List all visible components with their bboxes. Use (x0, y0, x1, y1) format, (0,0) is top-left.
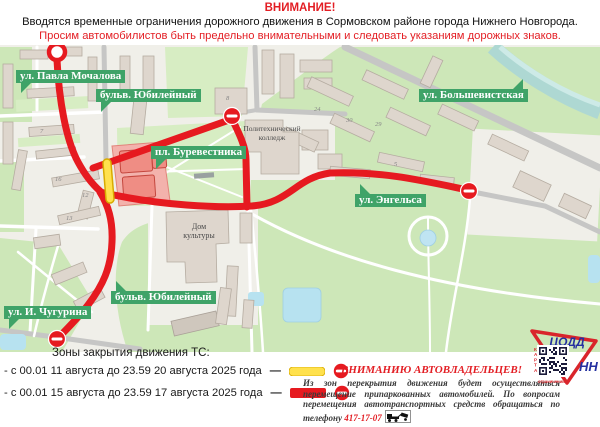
owner-notice: ВНИМАНИЮ АВТОВЛАДЕЛЬЦЕВ! Из зон перекрыт… (303, 364, 560, 423)
college-label-line2: колледж (259, 133, 286, 142)
building-number: 24 (314, 106, 321, 113)
street-label-burevestnika: пл. Буревестника (151, 146, 246, 159)
building-number: 16 (55, 176, 62, 183)
codd-logo: ЦОДД КАРТА НН ограничений (527, 317, 600, 393)
no-entry-sign-engelsa (461, 183, 478, 200)
road-closure-poster: ВНИМАНИЕ! Вводятся временные ограничения… (0, 0, 600, 427)
street-label-bolshevistskaya: ул. Большевистская (419, 89, 528, 102)
legend-dash: — (270, 365, 281, 377)
street-label-engelsa: ул. Энгельса (355, 194, 426, 207)
owner-notice-body: Из зон перекрытия движения будет осущест… (303, 378, 560, 423)
building-number: 29 (375, 121, 382, 128)
logo-qr-bottom-caption: ограничений (538, 379, 565, 384)
legend-title: Зоны закрытия движения ТС: (52, 347, 210, 359)
legend-item-text: - с 00.01 15 августа до 23.59 17 августа… (4, 387, 263, 399)
legend-item-red: - с 00.01 15 августа до 23.59 17 августа… (4, 385, 350, 401)
header-description: Вводятся временные ограничения дорожного… (0, 16, 600, 28)
building-number: 13 (66, 215, 73, 222)
closure-segment-yellow (107, 163, 110, 199)
no-entry-sign-north (224, 108, 241, 125)
owner-notice-title: ВНИМАНИЮ АВТОВЛАДЕЛЬЦЕВ! (303, 364, 560, 376)
street-label-yubileyny-bottom: бульв. Юбилейный (111, 291, 216, 304)
phone-number: 417-17-07 (344, 413, 382, 423)
legend-dash: — (271, 387, 282, 399)
logo-city: НН (579, 359, 598, 374)
street-label-yubileyny-top: бульв. Юбилейный (96, 89, 201, 102)
tow-truck-icon (385, 410, 411, 423)
college-label-line1: Политехнический (243, 124, 300, 133)
building-number: 30 (345, 117, 353, 124)
attention-title: ВНИМАНИЕ! (0, 2, 600, 14)
closure-start-marker (49, 45, 65, 60)
dom-kultury-label-line2: культуры (183, 231, 215, 240)
qr-code (537, 345, 569, 377)
street-label-chugurina: ул. И. Чугурина (4, 306, 91, 319)
header-warning: Просим автомобилистов быть предельно вни… (0, 30, 600, 42)
legend-item-text: - с 00.01 11 августа до 23.59 20 августа… (4, 365, 262, 377)
no-entry-sign-chugurina (49, 331, 66, 348)
building-number: 12 (82, 192, 89, 199)
street-label-pavla-mochalova: ул. Павла Мочалова (16, 70, 125, 83)
legend-item-yellow: - с 00.01 11 августа до 23.59 20 августа… (4, 363, 349, 379)
dom-kultury-label-line1: Дом (192, 222, 206, 231)
owner-notice-text: Из зон перекрытия движения будет осущест… (303, 378, 560, 423)
